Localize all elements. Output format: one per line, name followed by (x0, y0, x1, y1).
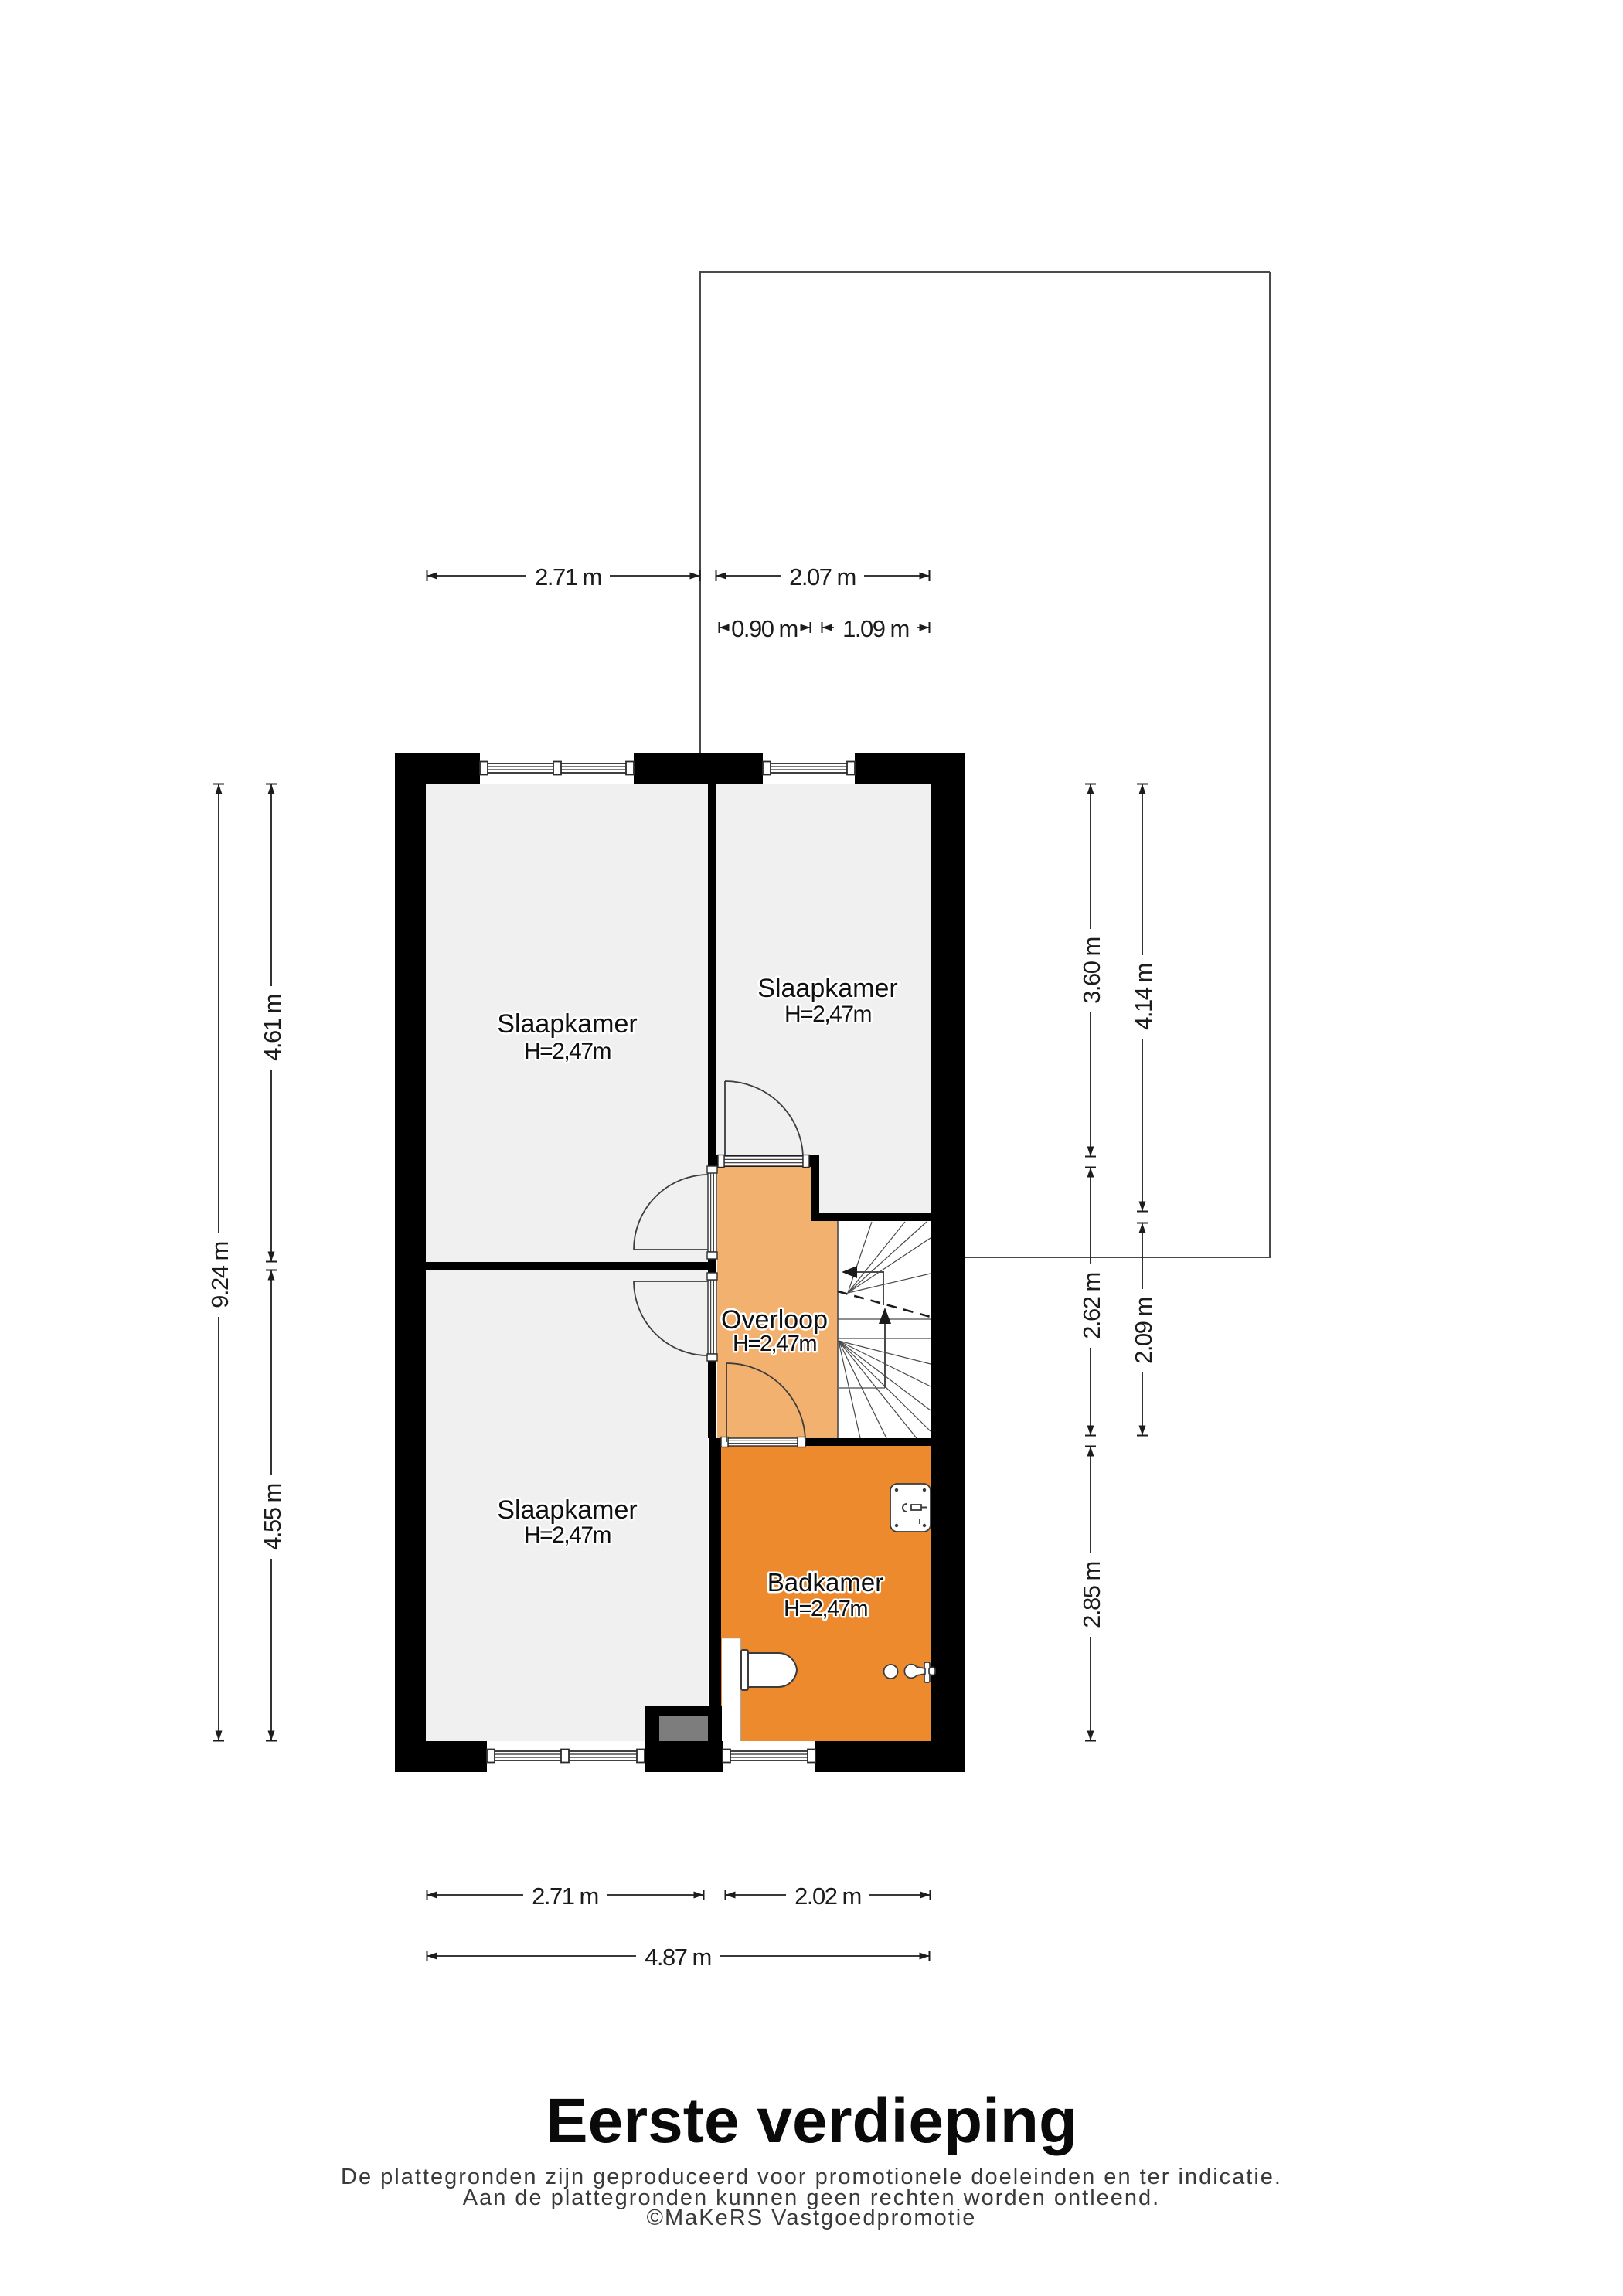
svg-text:Slaapkamer: Slaapkamer (497, 1009, 637, 1039)
svg-text:4.61 m: 4.61 m (259, 995, 286, 1061)
svg-text:Eerste verdieping: Eerste verdieping (546, 2086, 1077, 2156)
svg-text:3.60 m: 3.60 m (1078, 937, 1105, 1004)
svg-text:0.90 m: 0.90 m (731, 615, 798, 642)
svg-text:H=2,47m: H=2,47m (524, 1039, 611, 1064)
svg-text:4.55 m: 4.55 m (259, 1484, 286, 1550)
svg-text:2.71 m: 2.71 m (535, 563, 601, 590)
svg-text:2.07 m: 2.07 m (789, 563, 856, 590)
svg-text:2.09 m: 2.09 m (1130, 1298, 1157, 1364)
svg-text:Slaapkamer: Slaapkamer (757, 974, 897, 1003)
svg-text:H=2,47m: H=2,47m (784, 1002, 872, 1027)
svg-text:4.87 m: 4.87 m (645, 1944, 711, 1971)
svg-text:H=2,47m: H=2,47m (524, 1522, 611, 1548)
svg-text:©MaKeRS Vastgoedpromotie: ©MaKeRS Vastgoedpromotie (647, 2206, 977, 2230)
svg-text:Overloop: Overloop (721, 1305, 828, 1335)
svg-text:9.24 m: 9.24 m (206, 1242, 233, 1308)
svg-text:1.09 m: 1.09 m (842, 615, 909, 642)
svg-text:2.02 m: 2.02 m (794, 1883, 861, 1910)
svg-text:Badkamer: Badkamer (767, 1568, 883, 1597)
svg-text:4.14 m: 4.14 m (1130, 964, 1157, 1030)
svg-text:2.85 m: 2.85 m (1078, 1562, 1105, 1628)
svg-text:H=2,47m: H=2,47m (733, 1332, 816, 1356)
svg-text:2.62 m: 2.62 m (1078, 1273, 1105, 1339)
svg-text:Slaapkamer: Slaapkamer (497, 1495, 637, 1525)
svg-text:2.71 m: 2.71 m (532, 1883, 598, 1910)
svg-text:H=2,47m: H=2,47m (784, 1597, 867, 1621)
